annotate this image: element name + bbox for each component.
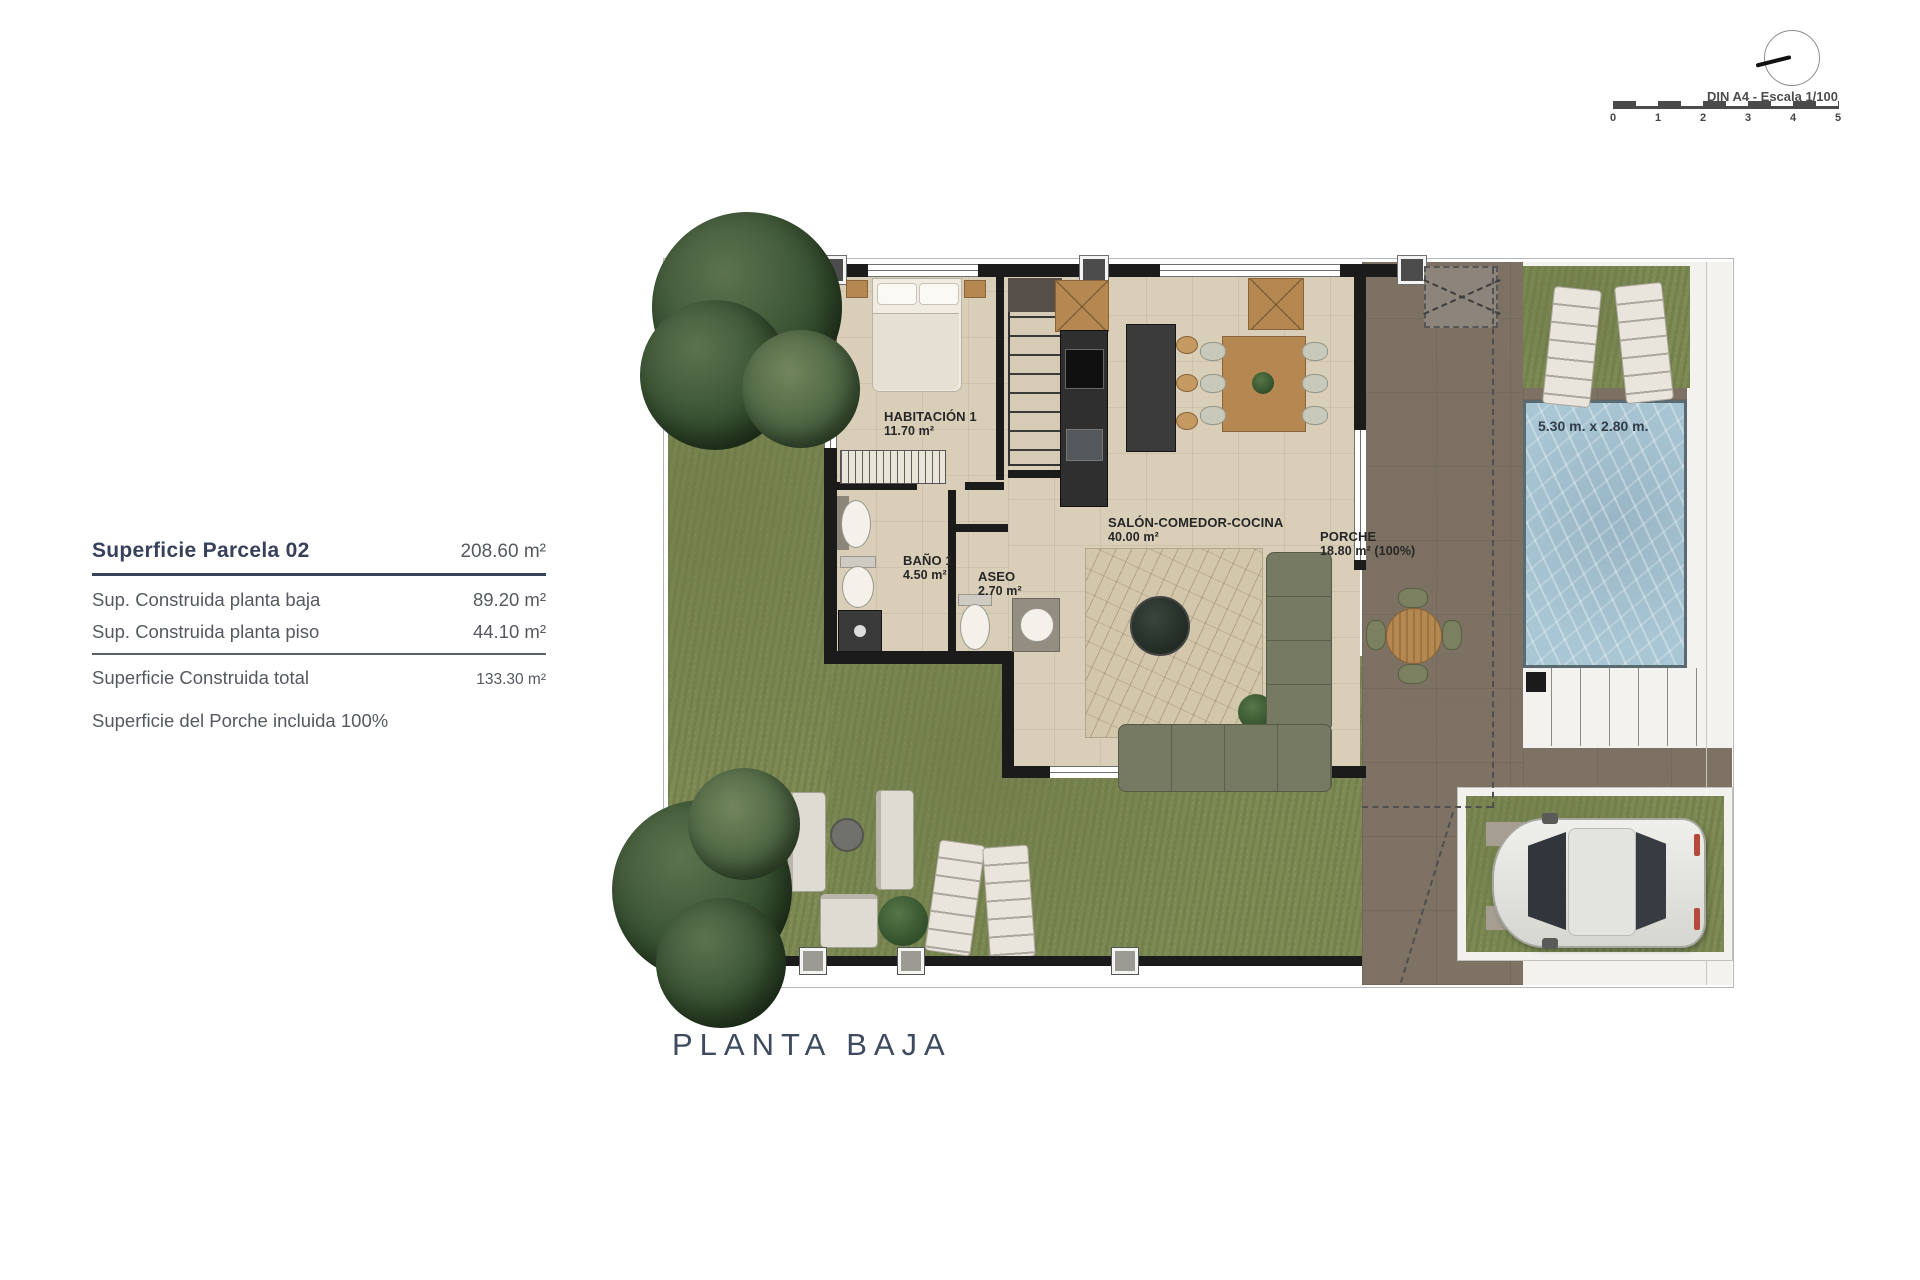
floor-plan-sheet: HABITACIÓN 1 11.70 m² BAÑO 1 4.50 m² ASE… — [0, 0, 1920, 1280]
pillow — [877, 283, 917, 305]
scale-tick-label: 1 — [1648, 112, 1668, 124]
tree — [742, 330, 860, 448]
scale-tick-label: 3 — [1738, 112, 1758, 124]
room-label-salon: SALÓN-COMEDOR-COCINA 40.00 m² — [1108, 516, 1283, 544]
entrance-porch — [1424, 266, 1498, 328]
wall-west-block-south — [824, 651, 1014, 664]
summary-row-label: Sup. Construida planta piso — [92, 621, 319, 643]
pool-steps — [1523, 668, 1700, 746]
car-mirror-top — [1542, 813, 1558, 824]
summary-row: Sup. Construida planta baja 89.20 m² — [92, 589, 546, 611]
scale-bar — [1613, 106, 1839, 109]
sofa-seat — [1118, 724, 1332, 792]
bed — [872, 278, 962, 392]
fence-pillar — [800, 948, 826, 974]
porch-table — [1386, 608, 1442, 664]
summary-row-value: 44.10 m² — [473, 621, 546, 643]
dining-chair — [1302, 374, 1328, 393]
room-area: 11.70 m² — [884, 425, 977, 439]
summary-note: Superficie del Porche incluida 100% — [92, 710, 546, 732]
pool-step-marker — [1526, 672, 1546, 692]
summary-row-label: Sup. Construida planta baja — [92, 589, 320, 611]
table-plant — [1252, 372, 1274, 394]
pillow — [919, 283, 959, 305]
summary-title-label: Superficie Parcela 02 — [92, 538, 310, 563]
kitchen-counter — [1060, 330, 1108, 507]
kitchen-island — [1126, 324, 1176, 452]
wall-bedroom-bath-b — [965, 482, 1004, 490]
wall-aseo-north — [956, 524, 1008, 532]
car — [1492, 818, 1706, 948]
dining-chair — [1200, 374, 1226, 393]
oven — [1065, 349, 1104, 389]
window-dining-north — [1160, 264, 1340, 277]
sink-kitchen — [1066, 429, 1103, 461]
scale-tick-label: 2 — [1693, 112, 1713, 124]
porch-dashed-boundary-south — [1362, 806, 1492, 808]
dining-chair — [1302, 342, 1328, 361]
bar-stool — [1176, 336, 1198, 354]
aseo-washstand — [1012, 598, 1060, 652]
wall-hall — [1008, 470, 1062, 478]
room-name: ASEO — [978, 570, 1022, 585]
bath-sink — [841, 500, 871, 548]
tree — [688, 768, 800, 880]
room-name: PORCHE — [1320, 530, 1415, 545]
car-tail-light-top — [1694, 834, 1700, 856]
fence-pillar — [898, 948, 924, 974]
nightstand — [846, 280, 868, 298]
sun-lounger — [982, 845, 1036, 960]
room-name: SALÓN-COMEDOR-COCINA — [1108, 516, 1283, 531]
dining-chair — [1200, 406, 1226, 425]
summary-divider — [92, 573, 546, 576]
scale-tick-label: 4 — [1783, 112, 1803, 124]
dining-chair — [1302, 406, 1328, 425]
room-area: 4.50 m² — [903, 569, 953, 583]
summary-row-value: 89.20 m² — [473, 589, 546, 611]
summary-row: Sup. Construida planta piso 44.10 m² — [92, 621, 546, 643]
porch-dashed-boundary — [1492, 268, 1494, 808]
wall-salon-west-lower — [1002, 651, 1014, 778]
pillar — [1398, 256, 1426, 284]
room-area: 18.80 m² (100%) — [1320, 545, 1415, 559]
summary-panel: Superficie Parcela 02 208.60 m² Sup. Con… — [92, 538, 546, 732]
window-bedroom-north — [868, 264, 978, 277]
car-mirror-bottom — [1542, 938, 1558, 949]
car-rear-window — [1636, 832, 1666, 930]
stairs-landing — [1008, 278, 1062, 312]
pool-dimensions-label: 5.30 m. x 2.80 m. — [1538, 418, 1649, 435]
shower-drain — [854, 625, 866, 637]
summary-total-value: 133.30 m² — [476, 671, 546, 690]
room-label-aseo: ASEO 2.70 m² — [978, 570, 1022, 598]
blanket — [873, 313, 959, 390]
pool — [1523, 400, 1687, 668]
room-area: 40.00 m² — [1108, 531, 1283, 545]
aseo-basin — [1020, 608, 1054, 642]
dining-chair — [1200, 342, 1226, 361]
car-roof — [1568, 828, 1636, 936]
tree — [656, 898, 786, 1028]
porch-chair — [1398, 588, 1428, 608]
compass-icon — [1764, 30, 1820, 86]
car-tail-light-bottom — [1694, 908, 1700, 930]
summary-title-row: Superficie Parcela 02 208.60 m² — [92, 538, 546, 564]
room-name: HABITACIÓN 1 — [884, 410, 977, 425]
car-windshield — [1528, 832, 1566, 930]
sofa-chaise — [1266, 552, 1332, 732]
summary-total-row: Superficie Construida total 133.30 m² — [92, 667, 546, 690]
porch-chair — [1366, 620, 1386, 650]
terrace-lower-band — [1523, 748, 1732, 788]
room-area: 2.70 m² — [978, 585, 1022, 599]
coffee-table — [1130, 596, 1190, 656]
summary-title-value: 208.60 m² — [460, 541, 546, 564]
floor-title: PLANTA BAJA — [672, 1026, 952, 1063]
outdoor-sofa — [876, 790, 914, 890]
room-name: BAÑO 1 — [903, 554, 953, 569]
scale-tick-label: 5 — [1828, 112, 1848, 124]
room-label-bano: BAÑO 1 4.50 m² — [903, 554, 953, 582]
fence-pillar — [1112, 948, 1138, 974]
pantry-closet — [1055, 280, 1109, 332]
wall-bedroom-east — [996, 277, 1004, 480]
garden-fence — [688, 956, 1362, 966]
shower — [838, 610, 882, 652]
bar-stool — [1176, 374, 1198, 392]
scale-tick-label: 0 — [1603, 112, 1623, 124]
porch-chair — [1442, 620, 1462, 650]
room-label-porche: PORCHE 18.80 m² (100%) — [1320, 530, 1415, 558]
nightstand — [964, 280, 986, 298]
porch-chair — [1398, 664, 1428, 684]
outdoor-coffee-table — [830, 818, 864, 852]
room-label-habitacion: HABITACIÓN 1 11.70 m² — [884, 410, 977, 438]
wardrobe — [840, 450, 946, 484]
summary-total-label: Superficie Construida total — [92, 667, 309, 689]
bar-stool — [1176, 412, 1198, 430]
summary-divider — [92, 653, 546, 655]
toilet — [842, 566, 874, 608]
bush — [878, 896, 928, 946]
outdoor-sofa — [820, 894, 878, 948]
aseo-toilet — [960, 604, 990, 650]
closet-hall — [1248, 278, 1304, 330]
